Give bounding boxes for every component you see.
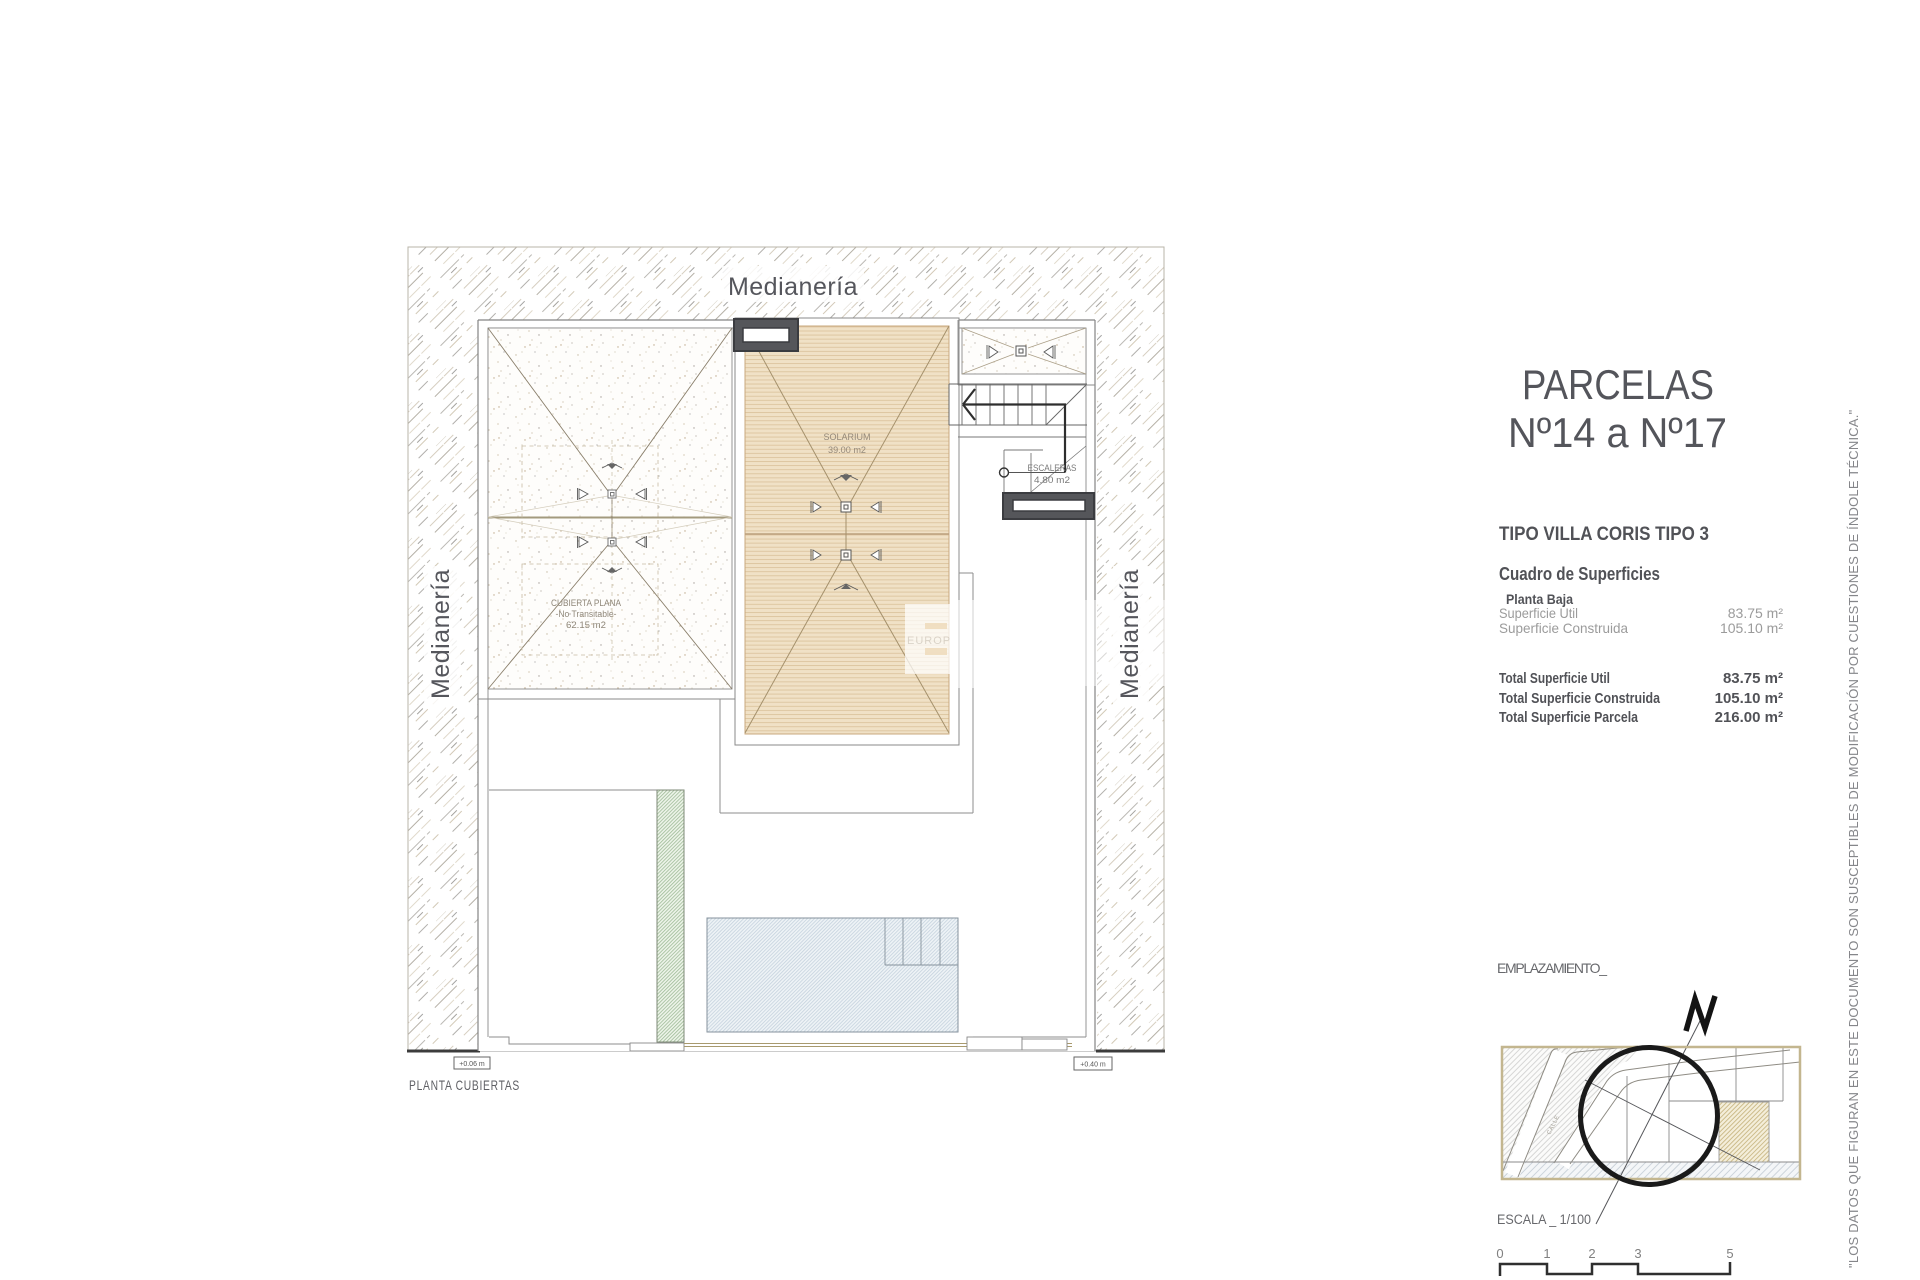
- svg-text:3: 3: [1634, 1246, 1641, 1261]
- svg-text:83.75 m²: 83.75 m²: [1723, 670, 1783, 687]
- svg-text:1: 1: [1543, 1246, 1550, 1261]
- svg-text:Medianería: Medianería: [728, 273, 858, 301]
- svg-text:62.15 m2: 62.15 m2: [566, 620, 606, 630]
- svg-text:Cuadro de Superficies: Cuadro de Superficies: [1499, 564, 1660, 584]
- svg-text:ESCALERAS: ESCALERAS: [1028, 463, 1077, 473]
- svg-text:CUBIERTA PLANA: CUBIERTA PLANA: [551, 598, 621, 608]
- svg-text:PARCELAS: PARCELAS: [1522, 361, 1714, 408]
- svg-text:105.10 m²: 105.10 m²: [1720, 620, 1783, 636]
- svg-text:Medianería: Medianería: [427, 569, 455, 699]
- svg-text:+0.06 m: +0.06 m: [459, 1061, 485, 1068]
- svg-text:PLANTA CUBIERTAS: PLANTA CUBIERTAS: [409, 1077, 520, 1093]
- svg-text:Total Superficie Util: Total Superficie Util: [1499, 670, 1610, 687]
- svg-text:EUROP: EUROP: [907, 635, 951, 647]
- svg-text:SOLARIUM: SOLARIUM: [824, 432, 871, 442]
- svg-text:Nº14 a Nº17: Nº14 a Nº17: [1508, 409, 1727, 456]
- svg-text:-No Transitable-: -No Transitable-: [556, 609, 617, 619]
- svg-text:Medianería: Medianería: [1116, 569, 1144, 699]
- svg-text:Total Superficie Construida: Total Superficie Construida: [1499, 690, 1661, 707]
- svg-text:Superficie Construida: Superficie Construida: [1499, 620, 1628, 636]
- svg-text:216.00 m²: 216.00 m²: [1715, 709, 1783, 726]
- svg-text:5: 5: [1726, 1246, 1733, 1261]
- svg-text:0: 0: [1496, 1246, 1503, 1261]
- svg-text:ESCALA _ 1/100: ESCALA _ 1/100: [1497, 1212, 1591, 1227]
- svg-text:Superficie Util: Superficie Util: [1499, 605, 1578, 621]
- svg-text:EMPLAZAMIENTO_: EMPLAZAMIENTO_: [1497, 960, 1608, 976]
- svg-text:105.10 m²: 105.10 m²: [1715, 690, 1783, 707]
- svg-text:+0.40 m: +0.40 m: [1080, 1062, 1106, 1069]
- svg-text:83.75 m²: 83.75 m²: [1728, 605, 1784, 621]
- svg-text:TIPO VILLA CORIS TIPO 3: TIPO VILLA CORIS TIPO 3: [1499, 524, 1709, 545]
- svg-text:39.00 m2: 39.00 m2: [828, 445, 866, 455]
- svg-text:"LOS DATOS QUE FIGURAN EN ESTE: "LOS DATOS QUE FIGURAN EN ESTE DOCUMENTO…: [1846, 409, 1861, 1268]
- svg-text:2: 2: [1588, 1246, 1595, 1261]
- svg-text:Total Superficie Parcela: Total Superficie Parcela: [1499, 709, 1639, 726]
- svg-text:4.80 m2: 4.80 m2: [1034, 475, 1070, 485]
